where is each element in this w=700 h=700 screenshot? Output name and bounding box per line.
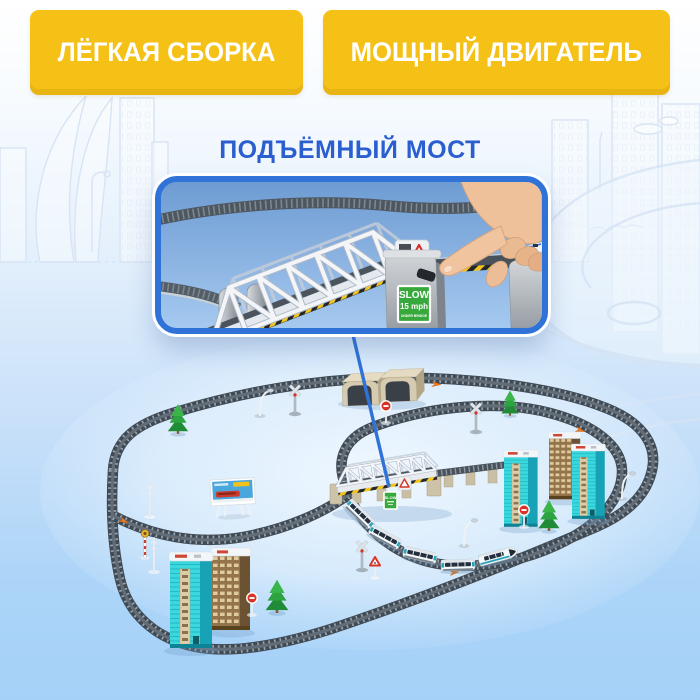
skyscraper-teal — [499, 450, 542, 533]
skyscraper-teal — [567, 444, 609, 525]
track-layout-scene: SLOW — [0, 0, 700, 700]
bridge-closeup-inset: SLOW 15 mph UNDER BRIDGE — [155, 176, 548, 334]
bridge-slow-sign: SLOW — [384, 492, 397, 509]
feature-title: ПОДЪЁМНЫЙ МОСТ — [0, 136, 700, 165]
badge-easy-assembly: ЛЁГКАЯ СБОРКА — [30, 10, 303, 95]
toy-train-product-image: SLOW — [0, 0, 700, 700]
slow-sign: SLOW 15 mph UNDER BRIDGE — [398, 286, 430, 322]
bridge-closeup-photo: SLOW 15 mph UNDER BRIDGE — [161, 182, 542, 328]
badge-powerful-motor: МОЩНЫЙ ДВИГАТЕЛЬ — [323, 10, 670, 95]
badge-easy-assembly-label: ЛЁГКАЯ СБОРКА — [58, 37, 276, 68]
badge-powerful-motor-label: МОЩНЫЙ ДВИГАТЕЛЬ — [351, 37, 642, 68]
slow-sign-line3: UNDER BRIDGE — [401, 314, 428, 318]
train-car — [440, 559, 476, 575]
feature-badges: ЛЁГКАЯ СБОРКА МОЩНЫЙ ДВИГАТЕЛЬ — [0, 10, 700, 95]
skyscraper-brown — [207, 548, 255, 638]
bridge-slow-sign-text: SLOW — [385, 495, 397, 500]
skyscraper-teal — [164, 552, 218, 656]
slow-sign-line2: 15 mph — [400, 302, 428, 311]
slow-sign-line1: SLOW — [399, 290, 430, 301]
